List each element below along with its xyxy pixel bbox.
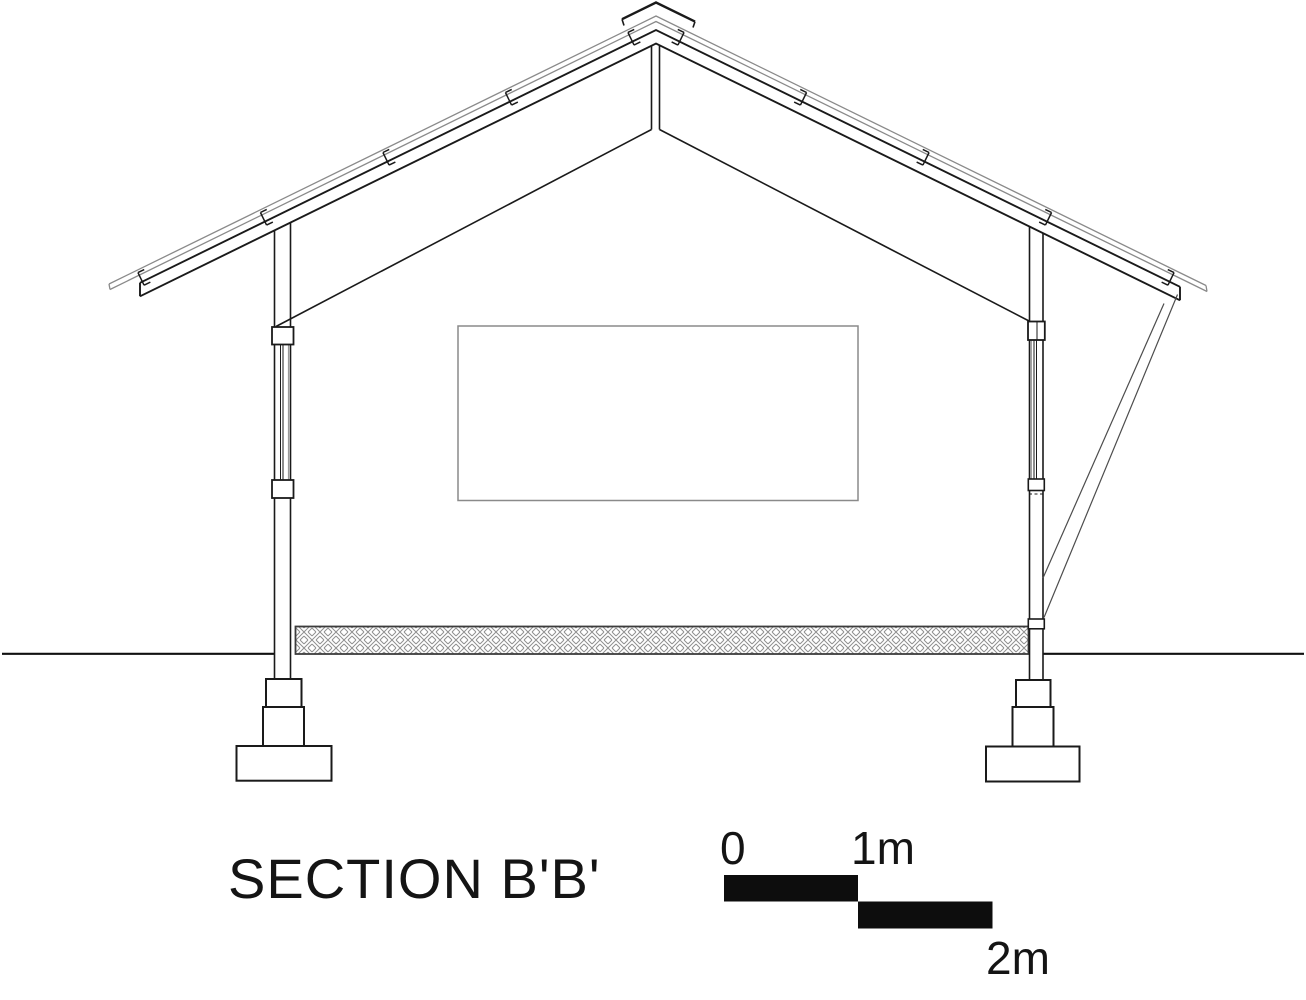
scale-label-2m: 2m bbox=[986, 935, 1050, 981]
wall-opening bbox=[458, 326, 858, 501]
foundation-left-pier bbox=[263, 707, 304, 746]
foundation-left bbox=[237, 679, 332, 781]
column-left-detail-lines bbox=[281, 345, 284, 481]
foundation-right-plinth bbox=[1016, 680, 1051, 707]
column-right-upper-connector bbox=[1028, 322, 1045, 341]
column-right-mid-connector bbox=[1028, 479, 1044, 491]
ceiling-lines bbox=[276, 130, 1030, 327]
scale-bar bbox=[724, 875, 993, 929]
column-left-lower-connector bbox=[272, 480, 294, 498]
scale-label-1m: 1m bbox=[851, 825, 915, 871]
section-drawing-canvas: SECTION B'B' 0 1m 2m bbox=[0, 0, 1306, 1000]
column-right-base-connector bbox=[1028, 619, 1044, 629]
drawing-title: SECTION B'B' bbox=[228, 851, 601, 907]
column-right-detail-lines bbox=[1034, 340, 1037, 479]
scale-bar-segment-1-2m bbox=[858, 902, 993, 929]
foundation-right bbox=[986, 680, 1080, 782]
column-left-upper-connector bbox=[272, 327, 294, 345]
scale-label-zero: 0 bbox=[720, 825, 746, 871]
column-left bbox=[237, 223, 332, 781]
column-right bbox=[986, 227, 1080, 782]
foundation-right-footing bbox=[986, 747, 1080, 782]
foundation-right-pier bbox=[1013, 707, 1054, 747]
floor-slab-hatch bbox=[296, 627, 1029, 655]
section-drawing bbox=[0, 0, 1306, 1000]
ridge-cap-icon bbox=[622, 3, 695, 28]
king-post bbox=[652, 46, 660, 130]
foundation-left-footing bbox=[237, 746, 332, 781]
ground-and-slab bbox=[2, 627, 1304, 655]
scale-bar-segment-0-1m bbox=[724, 875, 858, 902]
foundation-left-plinth bbox=[266, 679, 302, 707]
diagonal-brace bbox=[1043, 295, 1178, 618]
